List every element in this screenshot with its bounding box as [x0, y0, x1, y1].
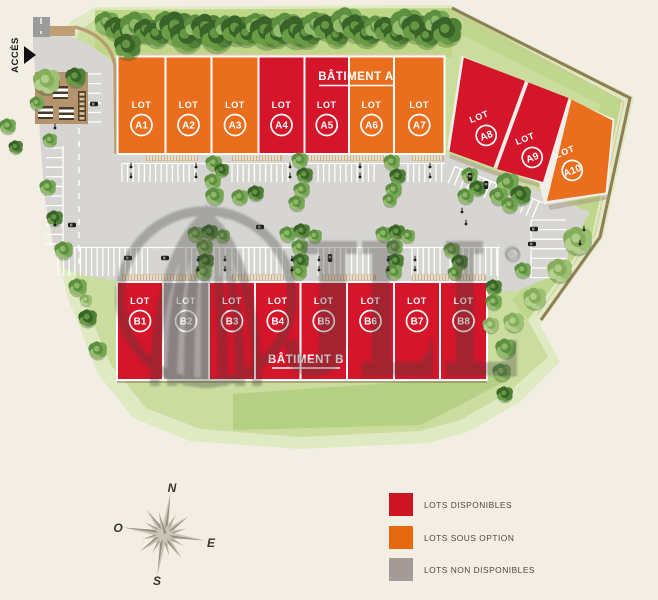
svg-text:A4: A4 — [275, 121, 288, 132]
svg-text:O: O — [113, 521, 123, 535]
svg-text:LOTS NON DISPONIBLES: LOTS NON DISPONIBLES — [424, 565, 535, 575]
svg-text:S: S — [153, 574, 161, 588]
svg-text:LOT: LOT — [268, 296, 288, 306]
svg-text:BÂTIMENT A: BÂTIMENT A — [318, 70, 393, 83]
svg-text:A5: A5 — [320, 121, 333, 132]
svg-text:ACCÈS: ACCÈS — [10, 37, 21, 73]
svg-text:E: E — [207, 536, 216, 550]
svg-text:A1: A1 — [135, 121, 148, 132]
svg-text:LOT: LOT — [132, 100, 152, 110]
svg-text:LOT: LOT — [225, 100, 245, 110]
svg-text:B7: B7 — [411, 317, 424, 328]
svg-text:A7: A7 — [413, 121, 426, 132]
svg-text:LOT: LOT — [362, 100, 382, 110]
svg-text:LOT: LOT — [272, 100, 292, 110]
svg-text:LOT: LOT — [317, 100, 337, 110]
svg-text:N: N — [168, 481, 177, 495]
svg-text:R: R — [509, 250, 515, 259]
svg-text:LOT: LOT — [130, 296, 150, 306]
svg-text:LOT: LOT — [407, 296, 427, 306]
svg-text:LOTS DISPONIBLES: LOTS DISPONIBLES — [424, 500, 512, 510]
svg-text:A2: A2 — [182, 121, 195, 132]
svg-text:B1: B1 — [134, 317, 147, 328]
svg-text:A3: A3 — [229, 121, 242, 132]
svg-text:LOT: LOT — [179, 100, 199, 110]
svg-text:LOTS SOUS OPTION: LOTS SOUS OPTION — [424, 533, 514, 543]
svg-text:LOT: LOT — [409, 100, 429, 110]
svg-text:A6: A6 — [365, 121, 378, 132]
